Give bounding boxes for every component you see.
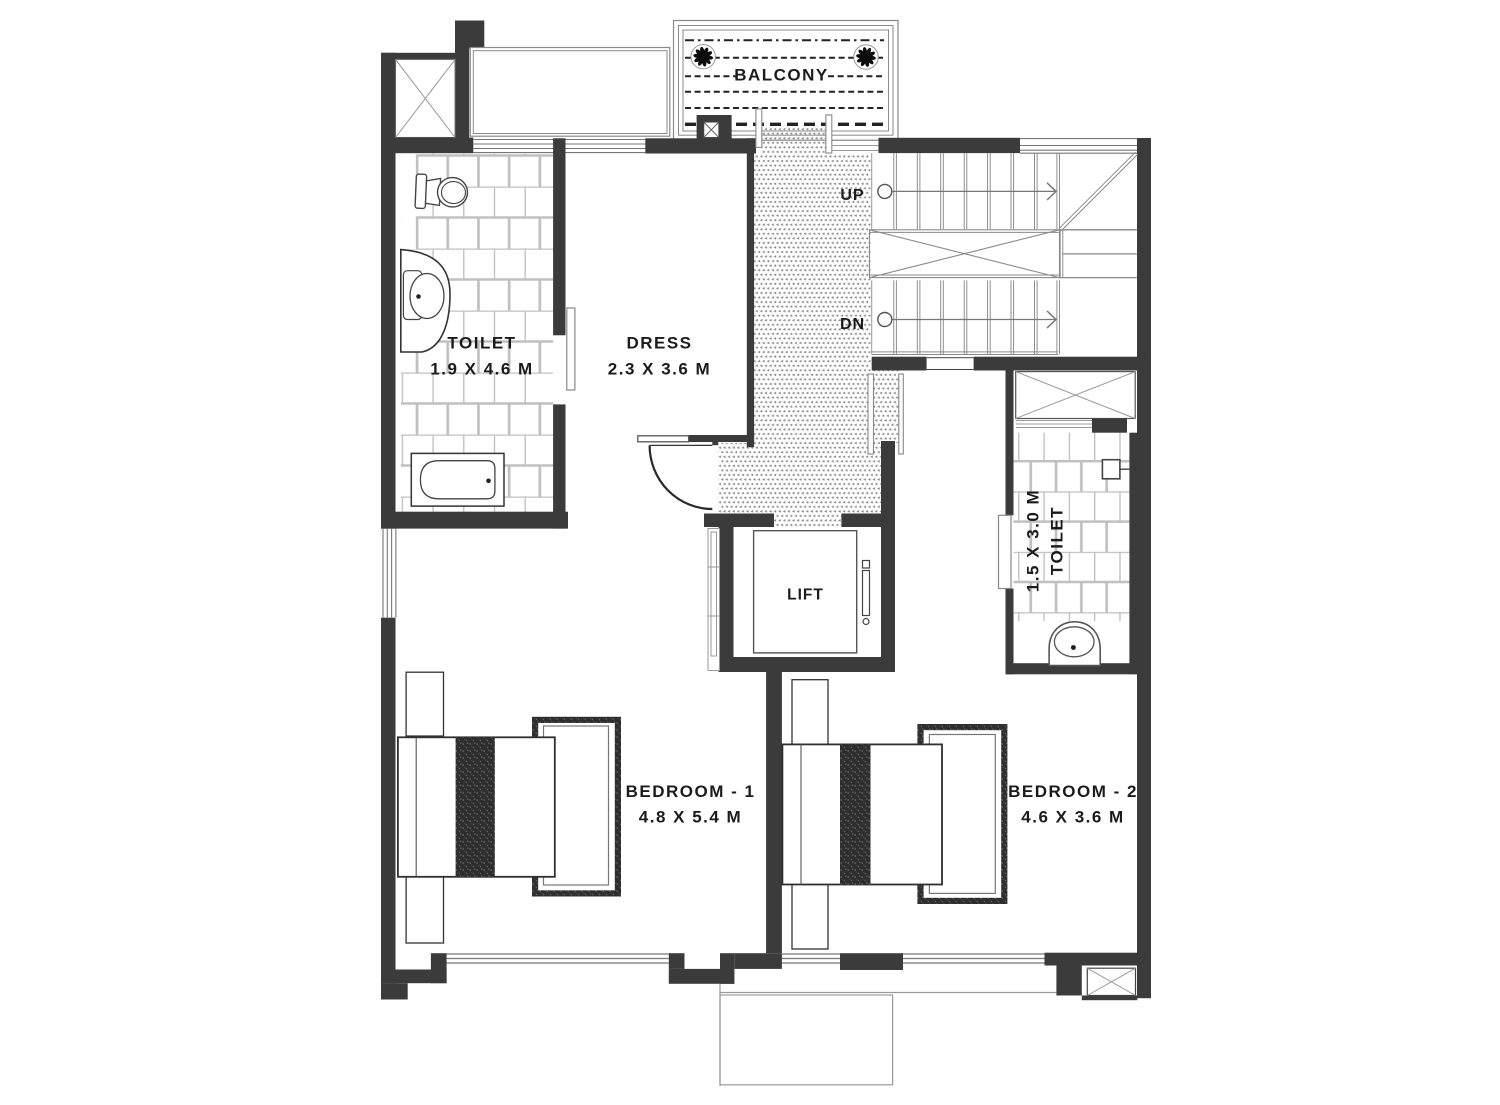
svg-text:BEDROOM - 1: BEDROOM - 1 — [626, 782, 756, 801]
svg-text:UP: UP — [840, 187, 864, 204]
svg-text:BEDROOM - 2: BEDROOM - 2 — [1008, 782, 1138, 801]
svg-text:DRESS: DRESS — [626, 334, 692, 353]
svg-text:TOILET: TOILET — [447, 334, 516, 353]
svg-text:1.5 X 3.0 M: 1.5 X 3.0 M — [1024, 489, 1043, 592]
svg-text:BALCONY: BALCONY — [734, 66, 829, 85]
svg-text:TOILET: TOILET — [1048, 506, 1067, 575]
svg-text:LIFT: LIFT — [787, 587, 824, 604]
svg-text:DN: DN — [840, 316, 865, 333]
svg-text:4.6 X 3.6 M: 4.6 X 3.6 M — [1021, 808, 1124, 827]
svg-text:1.9 X 4.6 M: 1.9 X 4.6 M — [430, 360, 533, 379]
svg-text:2.3 X 3.6 M: 2.3 X 3.6 M — [608, 360, 711, 379]
svg-text:4.8 X 5.4 M: 4.8 X 5.4 M — [639, 808, 742, 827]
